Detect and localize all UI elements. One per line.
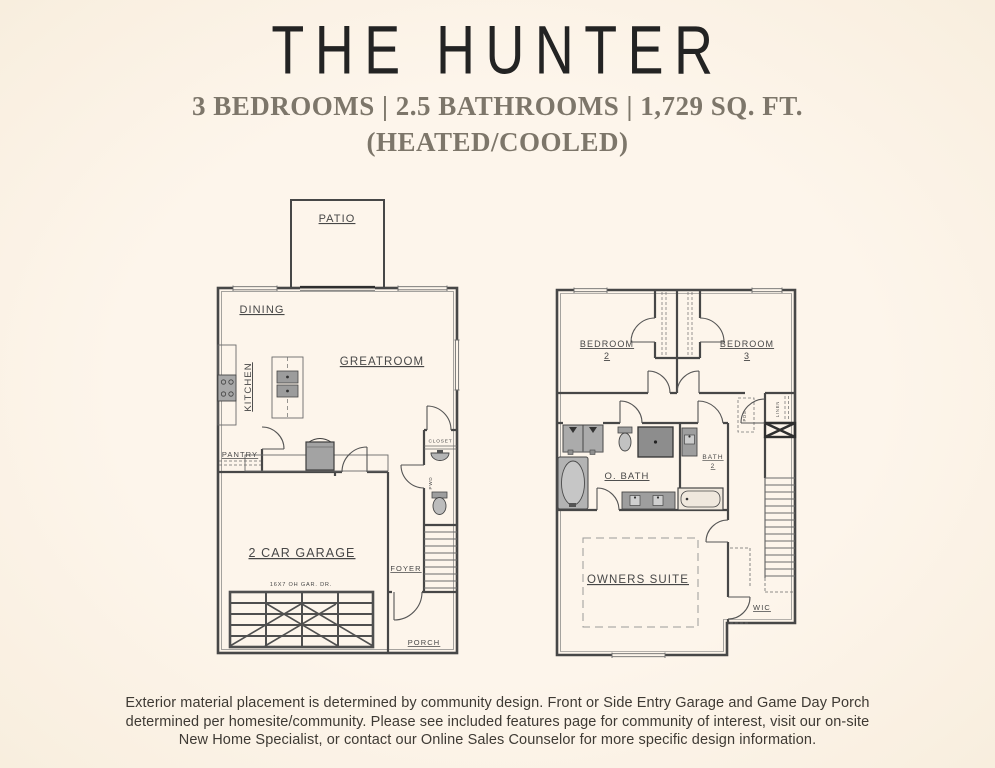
bedroom3-label: BEDROOM bbox=[720, 339, 774, 349]
disclaimer-line-2: determined per homesite/community. Pleas… bbox=[38, 713, 958, 732]
garage-door-size-label: 16X7 OH GAR. DR. bbox=[270, 582, 332, 588]
bath2-number: 2 bbox=[711, 463, 716, 470]
plan-title: THE HUNTER bbox=[271, 10, 723, 89]
range-icon bbox=[218, 375, 236, 401]
window bbox=[752, 287, 782, 293]
patio-label: PATIO bbox=[319, 213, 356, 225]
linen-shelves bbox=[785, 396, 789, 420]
toilet-icon bbox=[618, 427, 632, 451]
sliding-door bbox=[300, 285, 375, 291]
owners-bath-label: O. BATH bbox=[605, 471, 650, 482]
bedroom2-label: BEDROOM bbox=[580, 339, 634, 349]
window bbox=[574, 287, 607, 293]
pantry-label: PANTRY bbox=[222, 450, 258, 459]
powder-label: PWD bbox=[428, 477, 433, 490]
wic-dashed-walls bbox=[730, 548, 750, 623]
disclaimer-line-1: Exterior material placement is determine… bbox=[38, 694, 958, 713]
window bbox=[233, 285, 277, 291]
closet-label: CLOSET bbox=[429, 439, 453, 445]
window bbox=[454, 340, 459, 390]
bath2-tub-icon bbox=[678, 488, 723, 510]
bedroom2-number: 2 bbox=[604, 351, 610, 361]
garage-door bbox=[230, 592, 373, 647]
foyer-label: FOYER bbox=[390, 564, 421, 573]
kitchen-island bbox=[272, 357, 303, 418]
bath2-label: BATH bbox=[702, 454, 723, 461]
dining-label: DINING bbox=[239, 304, 284, 316]
window bbox=[398, 285, 447, 291]
chase-x-icon bbox=[765, 423, 795, 437]
bedroom3-number: 3 bbox=[744, 351, 750, 361]
porch-label: PORCH bbox=[408, 638, 441, 647]
owners-suite-label: OWNERS SUITE bbox=[587, 574, 689, 586]
walk-in-shower-icon bbox=[638, 427, 673, 457]
header: THE HUNTER 3 BEDROOMS | 2.5 BATHROOMS | … bbox=[0, 0, 995, 158]
linen-label: LINEN bbox=[775, 401, 780, 417]
disclaimer: Exterior material placement is determine… bbox=[38, 694, 958, 750]
shower-icon bbox=[563, 425, 603, 455]
wic-label: WIC bbox=[753, 603, 771, 612]
first-floor-plan-svg: PATIO DINING GREATROOM KITCHEN PANTRY CL… bbox=[205, 195, 460, 665]
stairs bbox=[765, 478, 795, 592]
window bbox=[612, 652, 665, 658]
stairs bbox=[424, 532, 457, 588]
kitchen-counter bbox=[218, 345, 236, 425]
bath2-vanity-icon bbox=[682, 428, 697, 456]
second-floor-plan-svg: BEDROOM 2 BEDROOM 3 O. BATH BATH 2 OWNER… bbox=[550, 285, 800, 670]
flyer-page: THE HUNTER 3 BEDROOMS | 2.5 BATHROOMS | … bbox=[0, 0, 995, 768]
second-floor-plan: BEDROOM 2 BEDROOM 3 O. BATH BATH 2 OWNER… bbox=[550, 285, 800, 670]
greatroom-label: GREATROOM bbox=[340, 356, 424, 368]
tub-icon bbox=[558, 457, 588, 509]
plan-specs: 3 BEDROOMS | 2.5 BATHROOMS | 1,729 SQ. F… bbox=[0, 91, 995, 121]
double-vanity-icon bbox=[622, 492, 675, 509]
plan-specs-heated: (HEATED/COOLED) bbox=[0, 127, 995, 158]
sink-icon bbox=[431, 450, 449, 461]
kitchen-label: KITCHEN bbox=[243, 362, 254, 411]
toilet-icon bbox=[432, 492, 447, 515]
disclaimer-line-3: New Home Specialist, or contact our Onli… bbox=[38, 731, 958, 750]
pantry-shelves bbox=[219, 461, 261, 465]
first-floor-plan: PATIO DINING GREATROOM KITCHEN PANTRY CL… bbox=[205, 195, 460, 665]
garage-label: 2 CAR GARAGE bbox=[249, 546, 356, 560]
pds-label: PDS bbox=[742, 410, 747, 421]
